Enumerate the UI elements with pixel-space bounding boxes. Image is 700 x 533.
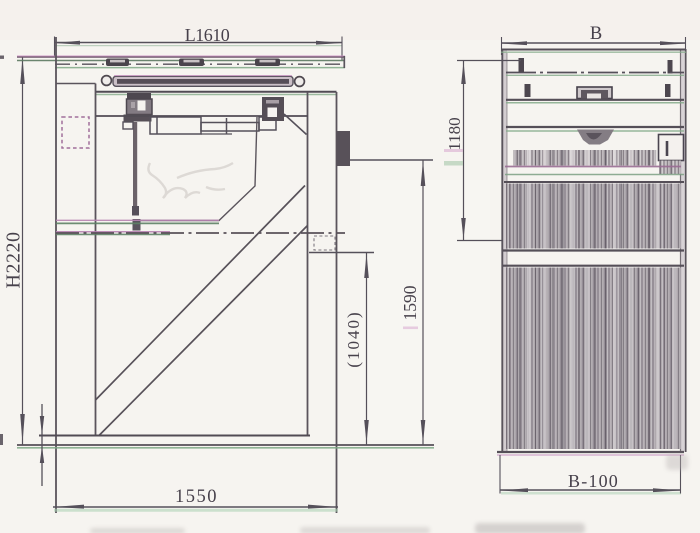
svg-text:1180: 1180 xyxy=(445,117,464,150)
svg-text:B-100: B-100 xyxy=(568,471,619,491)
svg-text:H2220: H2220 xyxy=(3,232,25,289)
svg-text:(1040): (1040) xyxy=(344,310,363,367)
svg-text:1550: 1550 xyxy=(175,487,218,507)
svg-text:1590: 1590 xyxy=(400,285,420,320)
svg-text:B: B xyxy=(590,24,602,44)
